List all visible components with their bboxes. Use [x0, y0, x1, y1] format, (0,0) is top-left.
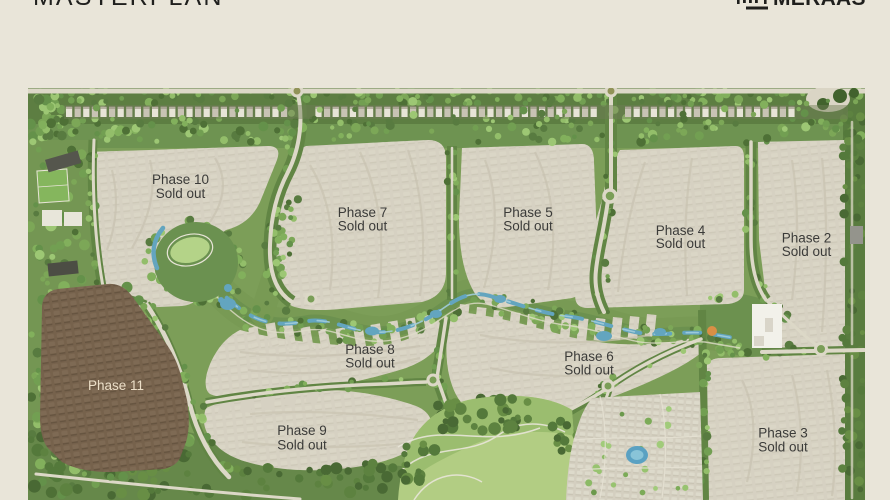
- svg-text:Sold out: Sold out: [338, 219, 388, 234]
- svg-text:Sold out: Sold out: [277, 438, 327, 453]
- svg-text:Phase 10: Phase 10: [152, 172, 209, 187]
- svg-text:Sold out: Sold out: [758, 440, 808, 455]
- svg-text:Sold out: Sold out: [564, 363, 614, 378]
- svg-text:Sold out: Sold out: [345, 356, 395, 371]
- svg-text:Sold out: Sold out: [656, 236, 706, 251]
- svg-text:Sold out: Sold out: [156, 186, 206, 201]
- svg-text:Sold out: Sold out: [503, 219, 553, 234]
- svg-text:Phase 9: Phase 9: [277, 423, 327, 438]
- svg-text:Phase 11: Phase 11: [88, 378, 144, 393]
- svg-text:Phase 3: Phase 3: [758, 426, 808, 441]
- svg-text:MERAAS: MERAAS: [773, 0, 866, 10]
- svg-text:Sold out: Sold out: [782, 244, 832, 259]
